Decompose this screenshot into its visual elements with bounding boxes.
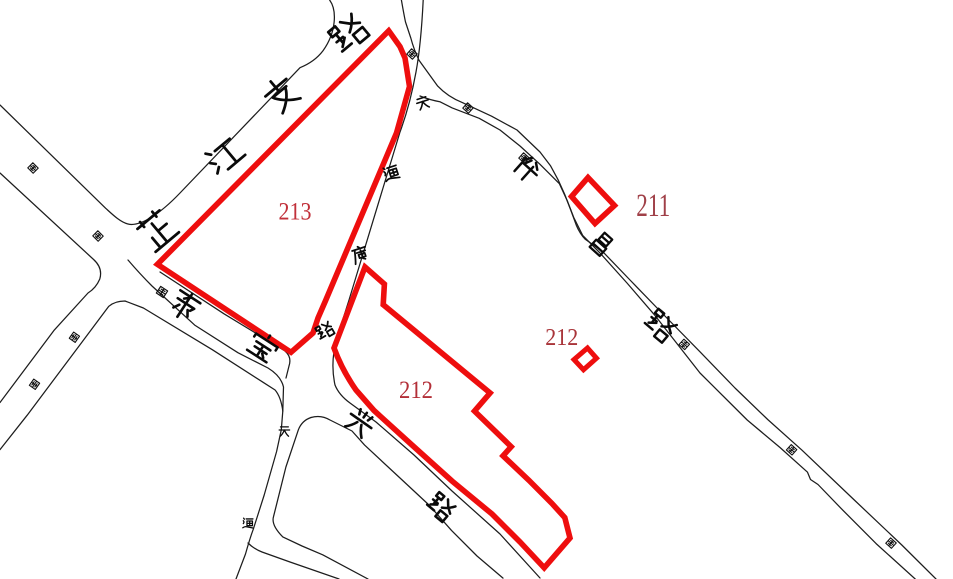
svg-text:213: 213 — [279, 198, 312, 225]
svg-text:212: 212 — [545, 325, 578, 351]
svg-text:212: 212 — [399, 377, 433, 404]
svg-text:211: 211 — [636, 188, 670, 224]
